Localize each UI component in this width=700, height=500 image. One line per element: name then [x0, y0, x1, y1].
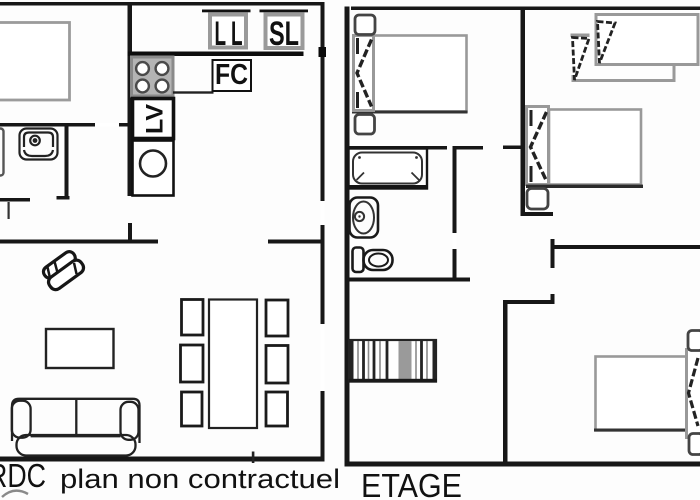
svg-text:SL: SL — [269, 15, 299, 53]
svg-text:ETAGE: ETAGE — [361, 468, 462, 500]
svg-text:plan non contractuel: plan non contractuel — [60, 464, 340, 494]
svg-text:LV: LV — [142, 104, 169, 134]
svg-text:L L: L L — [215, 15, 243, 53]
svg-text:FC: FC — [215, 59, 248, 91]
svg-text:RDC: RDC — [0, 457, 46, 494]
